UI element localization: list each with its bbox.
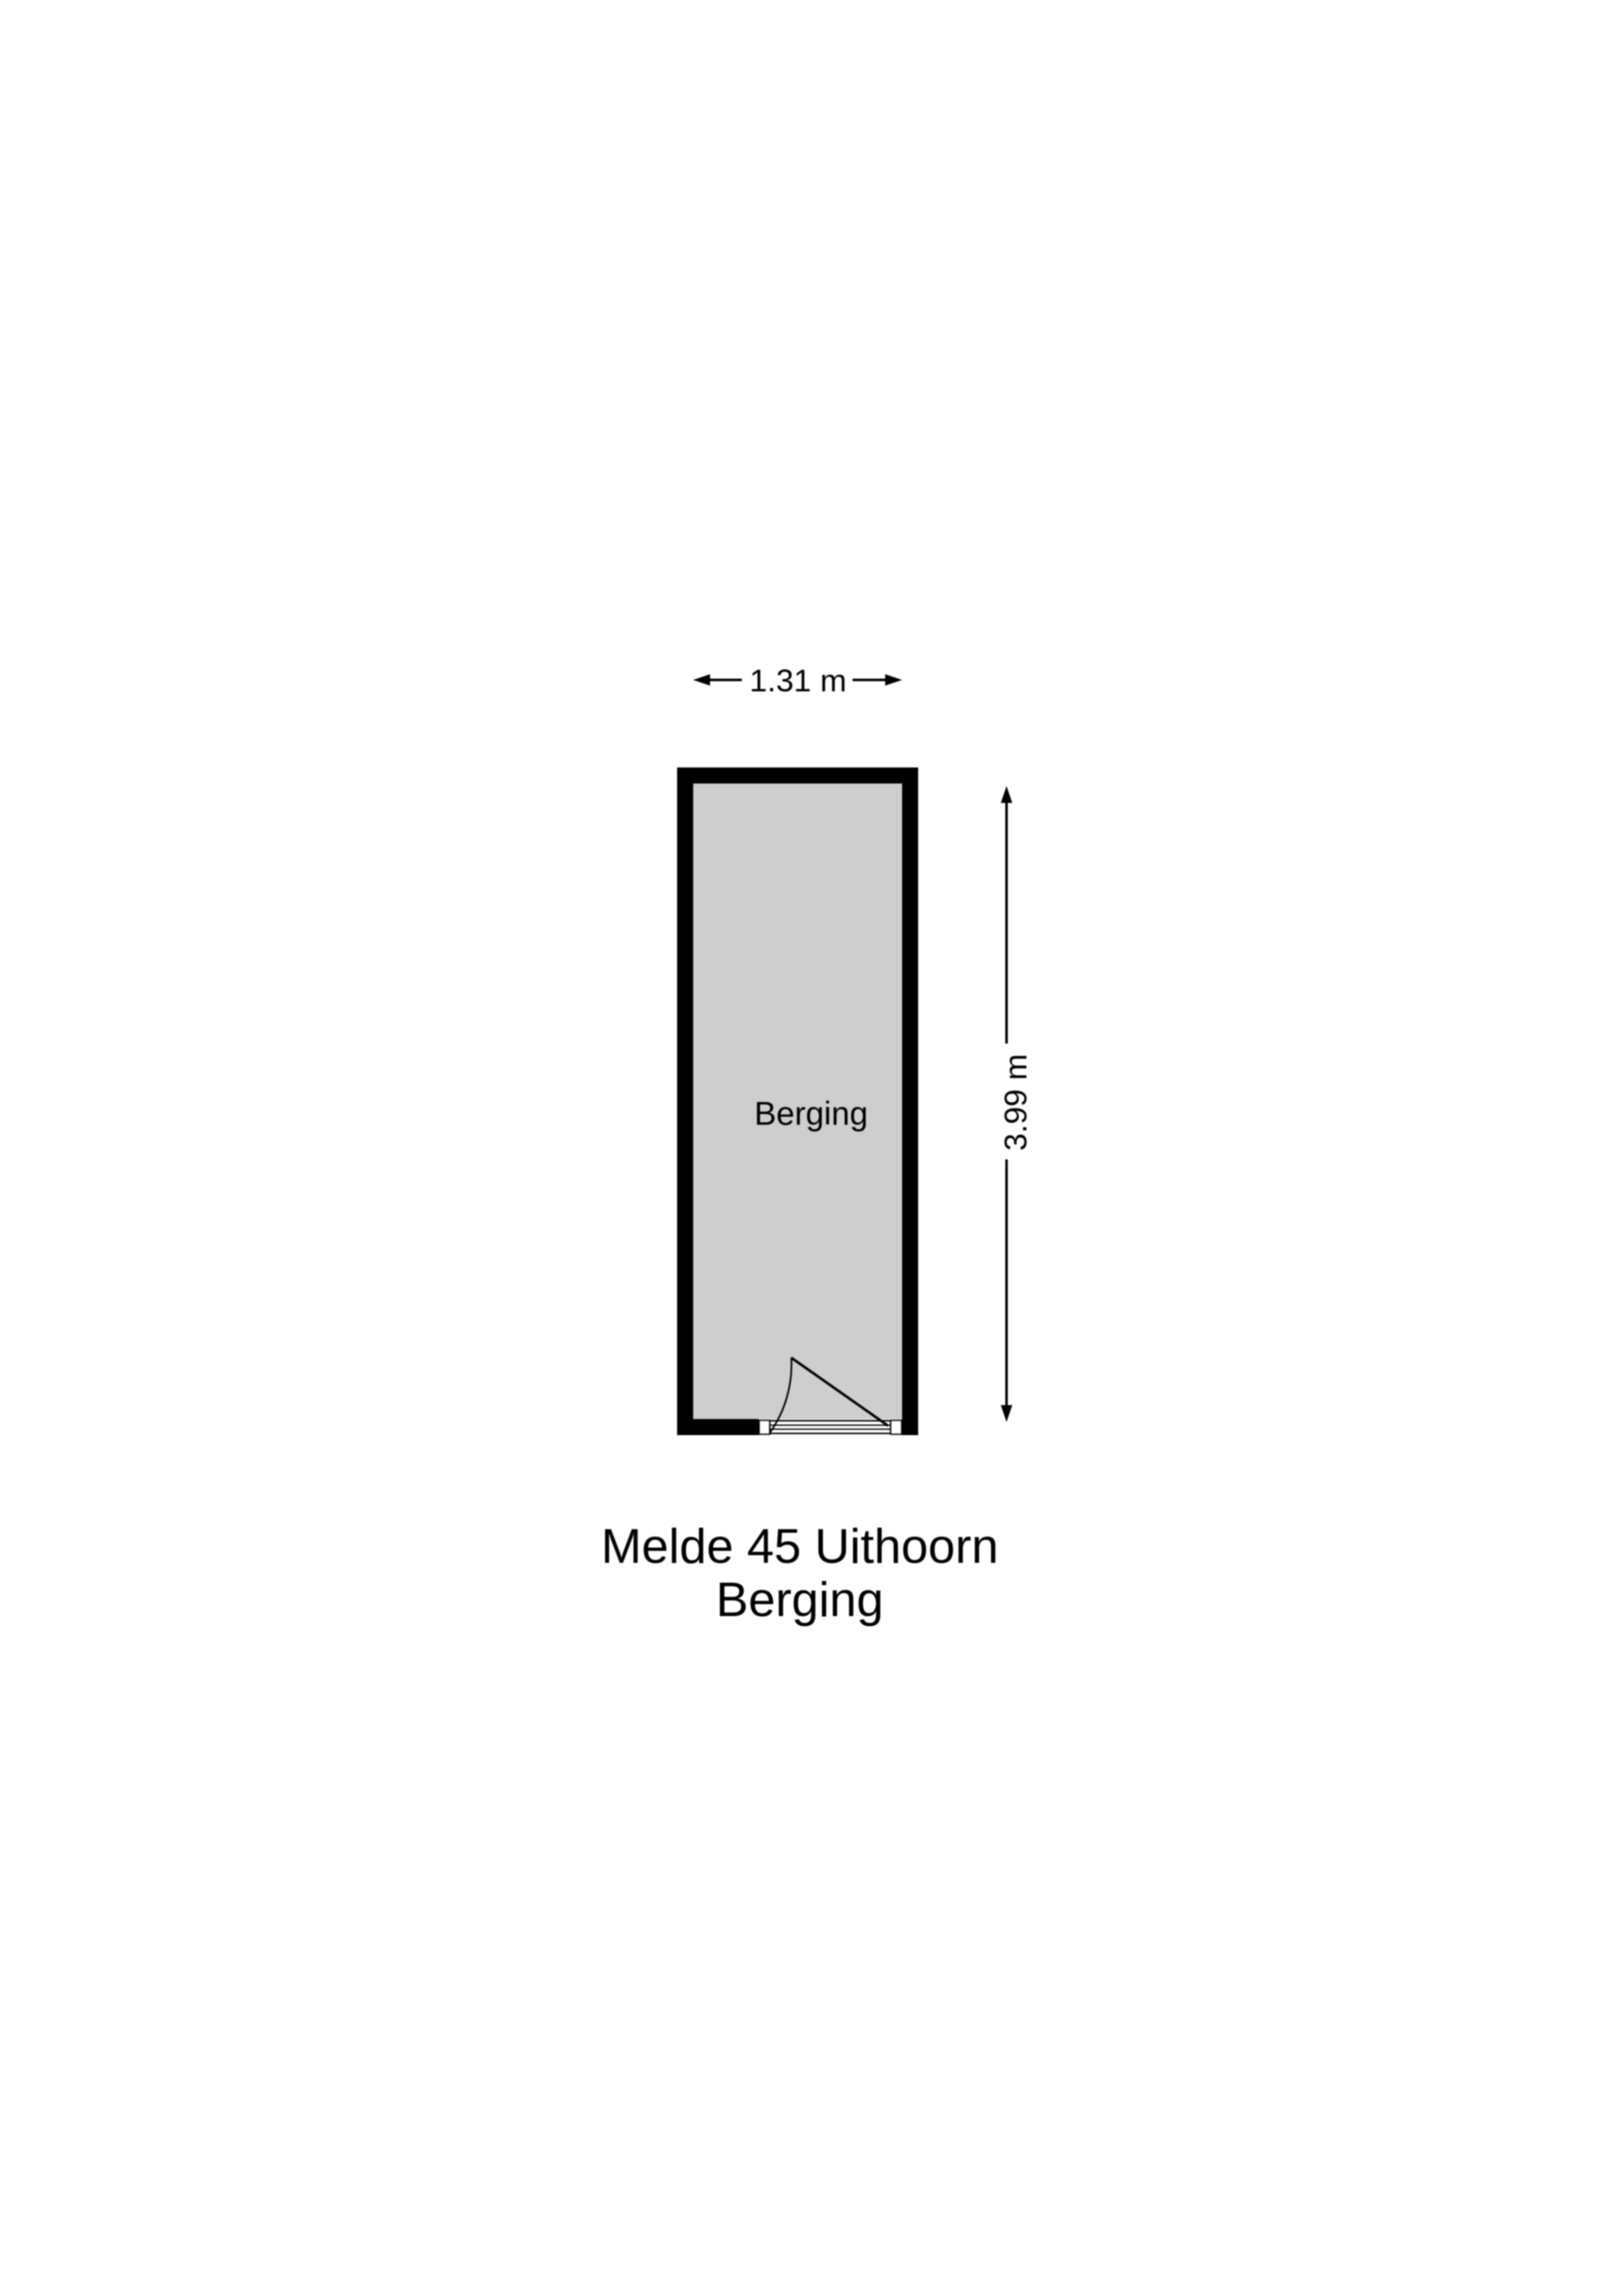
svg-text:Berging: Berging bbox=[754, 1096, 868, 1132]
svg-text:1.31 m: 1.31 m bbox=[749, 663, 847, 699]
svg-text:3.99 m: 3.99 m bbox=[998, 1054, 1034, 1151]
svg-text:Melde 45 Uithoorn: Melde 45 Uithoorn bbox=[601, 1520, 999, 1574]
svg-text:Berging: Berging bbox=[716, 1573, 883, 1627]
